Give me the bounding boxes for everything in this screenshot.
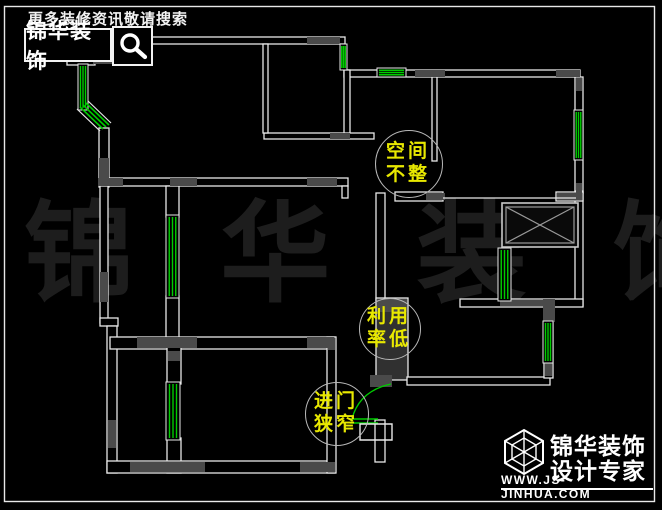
logo-underline bbox=[501, 488, 653, 490]
annotation-text: 进门 bbox=[276, 390, 396, 413]
annotation-label-space-irregular: 空间 不整 bbox=[348, 140, 468, 186]
annotation-text: 不整 bbox=[348, 163, 468, 186]
annotation-label-low-utilization: 利用 率低 bbox=[329, 305, 449, 351]
annotation-text: 空间 bbox=[348, 140, 468, 163]
annotation-label-narrow-entrance: 进门 狭窄 bbox=[276, 390, 396, 436]
annotation-text: 率低 bbox=[329, 328, 449, 351]
search-button[interactable] bbox=[112, 26, 153, 66]
jinhua-cube-logo-icon bbox=[502, 428, 548, 476]
brand-search-keyword: 锦华装饰 bbox=[24, 28, 112, 62]
annotation-text: 狭窄 bbox=[276, 413, 396, 436]
magnifier-icon bbox=[116, 30, 149, 62]
annotation-text: 利用 bbox=[329, 305, 449, 328]
promo-floorplan-image: 锦 华 装 饰 更多装修资讯敬请搜索 锦华装饰 空间 不整 利用 率低 进门 狭… bbox=[0, 0, 662, 510]
logo-website-url: WWW.JS-JINHUA.COM bbox=[501, 473, 656, 501]
